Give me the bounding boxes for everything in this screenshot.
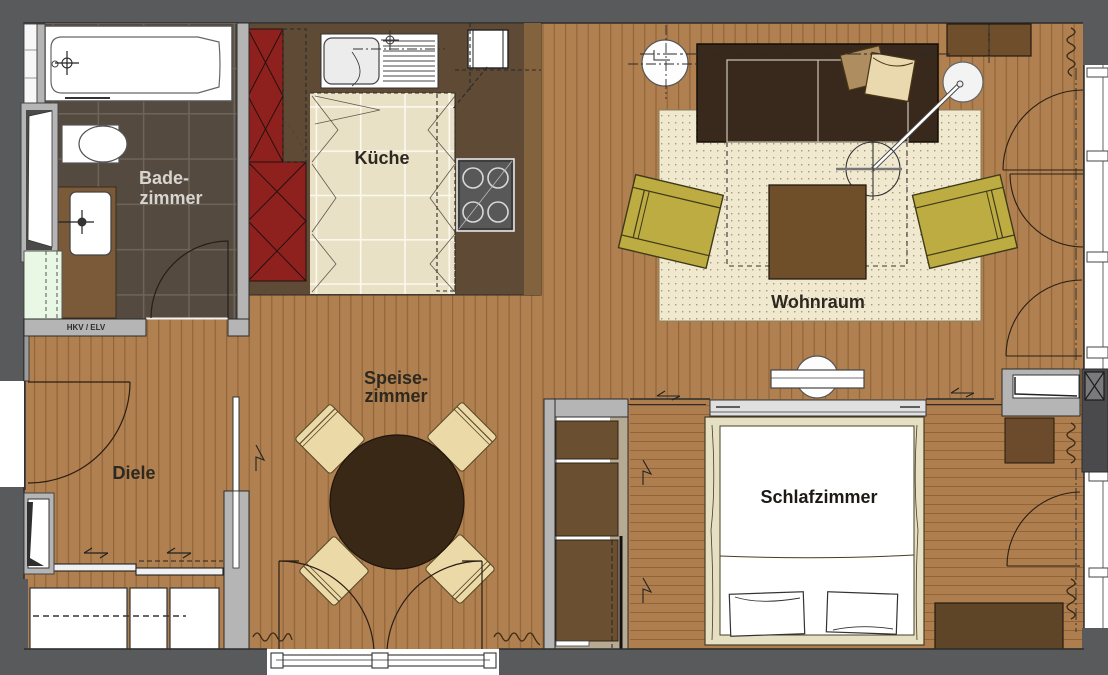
- svg-text:HKV / ELV: HKV / ELV: [67, 323, 106, 332]
- svg-text:zimmer: zimmer: [364, 386, 427, 406]
- svg-text:Speise-: Speise-: [364, 368, 428, 388]
- svg-text:Bade-: Bade-: [139, 168, 189, 188]
- svg-text:zimmer: zimmer: [139, 188, 202, 208]
- svg-text:Schlafzimmer: Schlafzimmer: [760, 487, 877, 507]
- svg-text:Küche: Küche: [354, 148, 409, 168]
- svg-text:Wohnraum: Wohnraum: [771, 292, 865, 312]
- svg-text:Diele: Diele: [112, 463, 155, 483]
